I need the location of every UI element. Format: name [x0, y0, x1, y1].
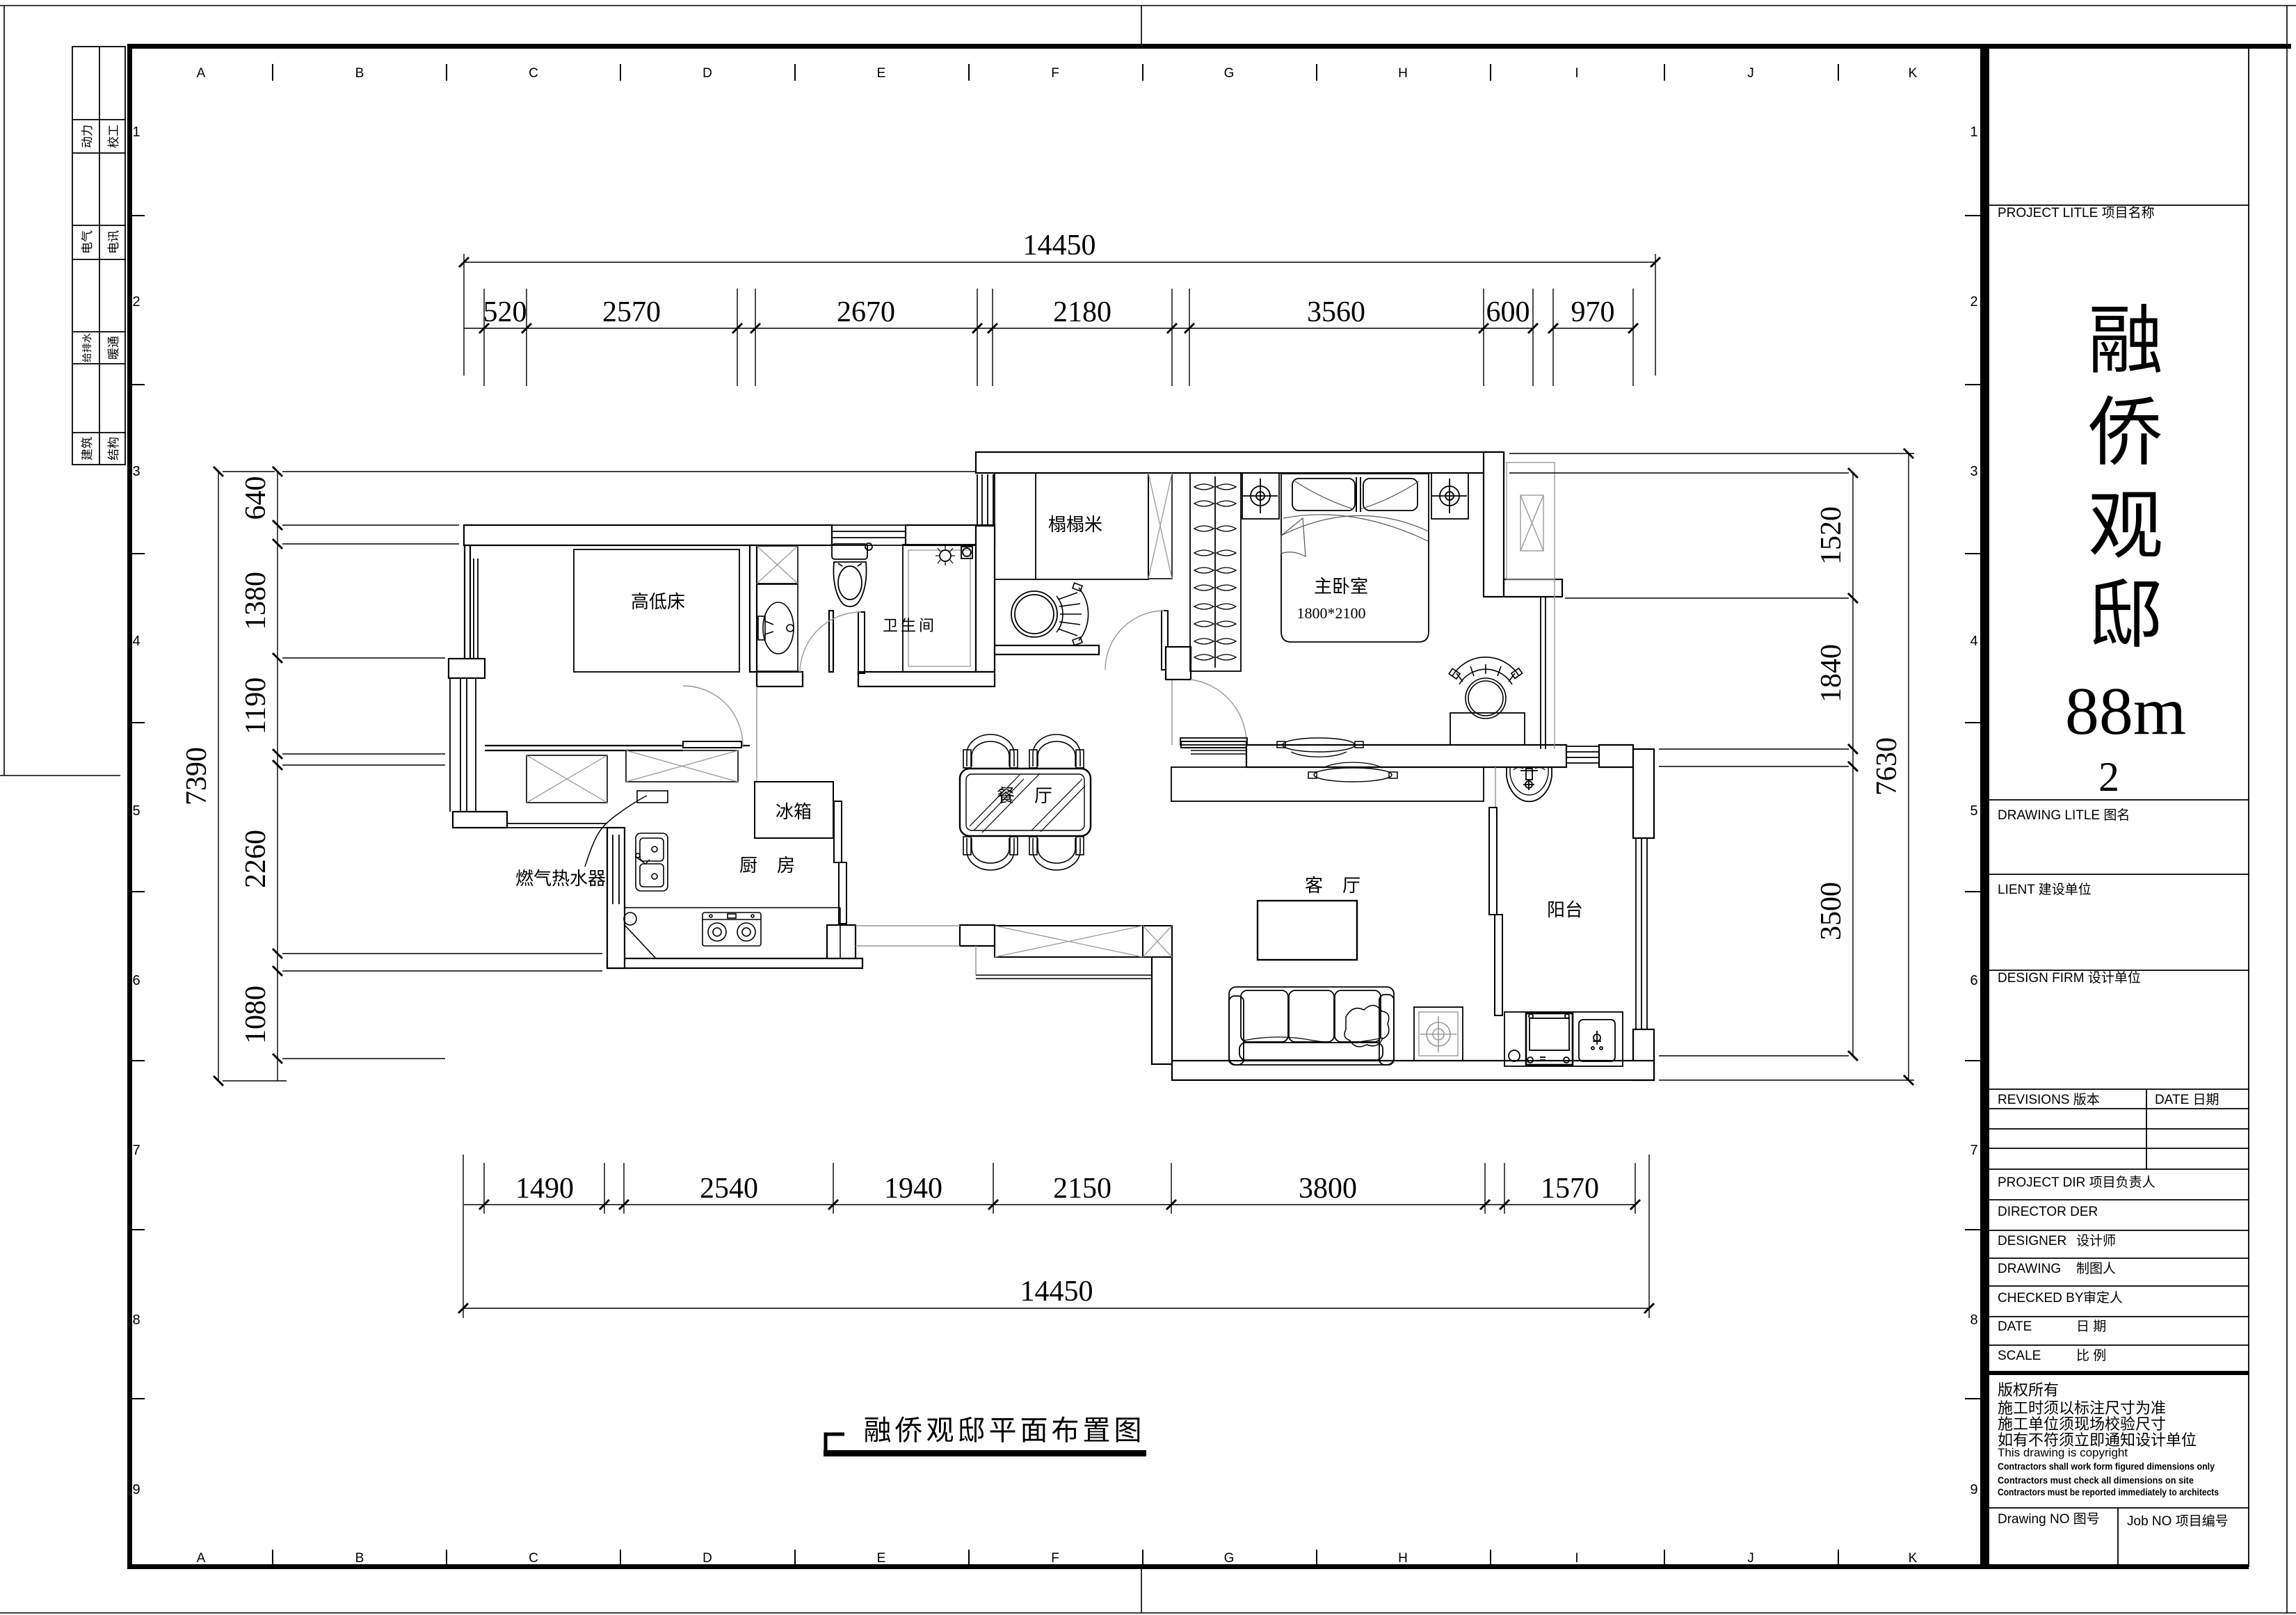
- svg-text:520: 520: [483, 296, 527, 328]
- svg-text:审定人: 审定人: [2083, 1290, 2123, 1305]
- svg-text:E: E: [877, 1551, 886, 1566]
- svg-text:This drawing is copyright: This drawing is copyright: [1998, 1446, 2128, 1459]
- svg-text:B: B: [355, 66, 364, 81]
- svg-text:REVISIONS 版本: REVISIONS 版本: [1998, 1092, 2100, 1107]
- svg-text:Job NO 项目编号: Job NO 项目编号: [2127, 1513, 2229, 1529]
- svg-text:客厅: 客厅: [1305, 876, 1380, 896]
- svg-text:设计师: 设计师: [2076, 1233, 2116, 1248]
- svg-text:7390: 7390: [181, 747, 213, 805]
- svg-text:2570: 2570: [602, 296, 661, 328]
- svg-text:3500: 3500: [1815, 882, 1847, 940]
- svg-text:3: 3: [132, 464, 140, 479]
- svg-text:餐厅: 餐厅: [997, 786, 1072, 806]
- svg-text:2670: 2670: [837, 296, 895, 328]
- svg-text:Contractors must be reported i: Contractors must be reported immediately…: [1998, 1486, 2219, 1497]
- svg-text:640: 640: [240, 476, 272, 520]
- svg-text:DESIGN FIRM 设计单位: DESIGN FIRM 设计单位: [1998, 970, 2141, 986]
- svg-text:8: 8: [132, 1312, 140, 1328]
- svg-text:Contractors shall work form fi: Contractors shall work form figured dime…: [1998, 1461, 2215, 1472]
- svg-text:DIRECTOR DER: DIRECTOR DER: [1998, 1205, 2098, 1219]
- svg-text:9: 9: [1970, 1482, 1977, 1497]
- svg-text:970: 970: [1571, 296, 1615, 328]
- svg-text:版权所有: 版权所有: [1998, 1381, 2059, 1399]
- svg-text:D: D: [703, 1551, 712, 1566]
- svg-text:1: 1: [132, 124, 140, 140]
- svg-text:侨: 侨: [2088, 392, 2163, 475]
- svg-text:C: C: [529, 66, 538, 81]
- svg-text:2260: 2260: [240, 830, 272, 888]
- svg-text:B: B: [355, 1551, 364, 1566]
- svg-text:1800*2100: 1800*2100: [1297, 604, 1366, 622]
- svg-text:K: K: [1909, 66, 1918, 81]
- svg-text:H: H: [1398, 66, 1408, 81]
- svg-text:I: I: [1575, 1551, 1578, 1566]
- svg-text:建筑: 建筑: [81, 437, 94, 460]
- svg-text:校工: 校工: [107, 124, 120, 148]
- svg-text:E: E: [877, 66, 886, 81]
- svg-text:5: 5: [132, 803, 140, 819]
- svg-text:3800: 3800: [1299, 1173, 1357, 1205]
- svg-text:2540: 2540: [700, 1173, 758, 1205]
- svg-text:1380: 1380: [240, 572, 272, 630]
- svg-text:施工时须以标注尺寸为准: 施工时须以标注尺寸为准: [1998, 1399, 2166, 1417]
- svg-text:阳台: 阳台: [1547, 900, 1583, 920]
- svg-text:厨房: 厨房: [739, 855, 814, 876]
- svg-text:Drawing NO 图号: Drawing NO 图号: [1998, 1512, 2100, 1527]
- svg-text:给排水: 给排水: [81, 333, 93, 362]
- svg-text:动力: 动力: [81, 124, 94, 148]
- svg-text:6: 6: [132, 973, 140, 988]
- svg-text:电讯: 电讯: [107, 230, 120, 254]
- svg-text:2: 2: [1970, 294, 1977, 310]
- svg-text:燃气热水器: 燃气热水器: [515, 869, 606, 889]
- svg-text:J: J: [1747, 1551, 1754, 1566]
- svg-text:电气: 电气: [81, 230, 94, 254]
- svg-text:PROJECT DIR 项目负责人: PROJECT DIR 项目负责人: [1998, 1175, 2155, 1190]
- svg-text:日 期: 日 期: [2076, 1319, 2106, 1334]
- svg-text:施工单位须现场校验尺寸: 施工单位须现场校验尺寸: [1998, 1415, 2166, 1433]
- svg-text:2: 2: [132, 294, 140, 310]
- svg-text:D: D: [703, 66, 712, 81]
- svg-text:1520: 1520: [1815, 506, 1847, 565]
- svg-text:7630: 7630: [1871, 737, 1903, 796]
- svg-text:A: A: [197, 1551, 206, 1566]
- svg-text:14450: 14450: [1020, 1276, 1093, 1308]
- svg-text:结构: 结构: [107, 437, 120, 460]
- svg-text:6: 6: [1970, 973, 1977, 988]
- svg-text:冰箱: 冰箱: [776, 802, 812, 822]
- svg-text:邸: 邸: [2088, 575, 2163, 657]
- svg-text:8: 8: [1970, 1312, 1977, 1328]
- svg-text:F: F: [1051, 1551, 1059, 1566]
- svg-text:G: G: [1224, 1551, 1235, 1566]
- svg-text:A: A: [197, 66, 206, 81]
- svg-text:榻榻米: 榻榻米: [1048, 515, 1102, 535]
- svg-text:1490: 1490: [515, 1173, 574, 1205]
- svg-text:G: G: [1224, 66, 1235, 81]
- svg-text:F: F: [1051, 66, 1059, 81]
- svg-text:14450: 14450: [1023, 230, 1096, 262]
- svg-text:4: 4: [132, 634, 140, 649]
- svg-text:1570: 1570: [1541, 1173, 1599, 1205]
- svg-text:600: 600: [1486, 296, 1530, 328]
- svg-text:7: 7: [1970, 1143, 1977, 1158]
- svg-text:DATE 日期: DATE 日期: [2155, 1092, 2219, 1107]
- svg-text:1190: 1190: [240, 677, 272, 734]
- svg-text:制图人: 制图人: [2076, 1261, 2116, 1276]
- svg-text:融: 融: [2088, 300, 2163, 383]
- svg-text:SCALE: SCALE: [1998, 1349, 2041, 1363]
- svg-text:DESIGNER: DESIGNER: [1998, 1234, 2066, 1248]
- svg-text:CHECKED BY: CHECKED BY: [1998, 1291, 2084, 1305]
- svg-text:LIENT 建设单位: LIENT 建设单位: [1998, 882, 2092, 897]
- svg-text:3560: 3560: [1307, 296, 1365, 328]
- svg-text:3: 3: [1970, 464, 1977, 479]
- svg-text:9: 9: [132, 1482, 140, 1497]
- svg-text:K: K: [1909, 1551, 1918, 1566]
- svg-text:I: I: [1575, 66, 1578, 81]
- svg-text:Contractors must check all dim: Contractors must check all dimensions on…: [1998, 1475, 2194, 1486]
- svg-text:7: 7: [132, 1143, 140, 1158]
- svg-text:融侨观邸平面布置图: 融侨观邸平面布置图: [864, 1415, 1146, 1446]
- svg-text:88m: 88m: [2065, 674, 2186, 749]
- svg-text:高低床: 高低床: [631, 592, 685, 612]
- svg-text:5: 5: [1970, 803, 1977, 819]
- svg-text:主卧室: 主卧室: [1314, 577, 1368, 597]
- svg-text:2180: 2180: [1053, 296, 1111, 328]
- svg-text:2: 2: [2098, 754, 2119, 800]
- svg-text:J: J: [1747, 66, 1754, 81]
- svg-text:暖通: 暖通: [107, 336, 120, 360]
- svg-text:1840: 1840: [1815, 644, 1847, 702]
- svg-text:1: 1: [1970, 124, 1977, 140]
- svg-text:卫生间: 卫生间: [883, 617, 937, 634]
- svg-text:DATE: DATE: [1998, 1319, 2032, 1334]
- svg-text:DRAWING: DRAWING: [1998, 1262, 2061, 1276]
- svg-text:C: C: [529, 1551, 538, 1566]
- svg-text:比 例: 比 例: [2076, 1348, 2106, 1363]
- svg-text:DRAWING LITLE 图名: DRAWING LITLE 图名: [1998, 807, 2130, 823]
- svg-text:1080: 1080: [240, 986, 272, 1044]
- svg-text:2150: 2150: [1053, 1173, 1111, 1205]
- svg-text:PROJECT LITLE 项目名称: PROJECT LITLE 项目名称: [1998, 205, 2155, 220]
- svg-text:1940: 1940: [884, 1173, 942, 1205]
- svg-text:H: H: [1398, 1551, 1408, 1566]
- svg-text:4: 4: [1970, 634, 1977, 649]
- svg-text:观: 观: [2088, 485, 2163, 568]
